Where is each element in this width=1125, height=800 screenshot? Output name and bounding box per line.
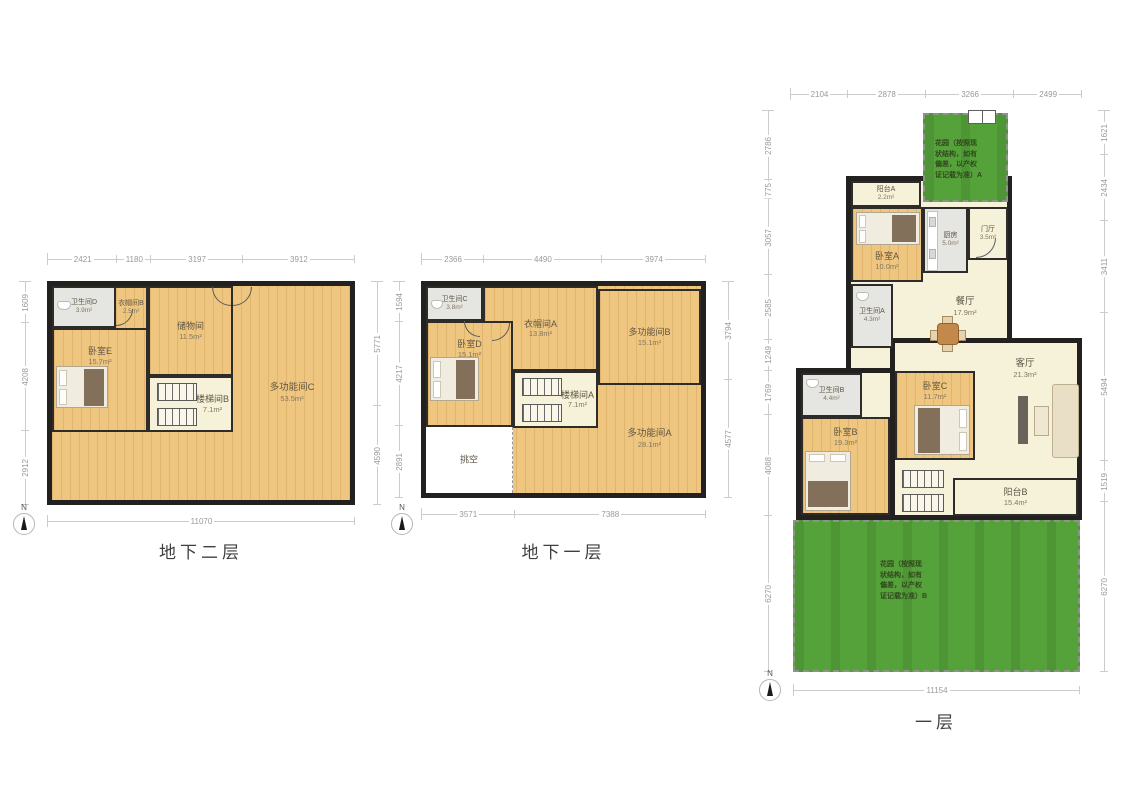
dim-segment: 2104 (790, 88, 848, 100)
dim-segment: 4590 (371, 406, 383, 505)
dim-value: 3794 (724, 320, 733, 342)
compass-n-label: N (759, 670, 781, 679)
compass-north-icon: N (391, 504, 413, 535)
room-label: 阳台B15.4m² (955, 487, 1076, 507)
dim-segment: 2366 (421, 253, 484, 265)
pillow-icon (859, 230, 866, 243)
room-label: 卧室E15.7m² (54, 346, 146, 366)
dim-value: 2421 (72, 255, 94, 264)
room-area: 3.9m² (76, 307, 93, 315)
room-name: 卧室E (88, 346, 112, 357)
dim-value: 3571 (457, 510, 479, 519)
dim-value: 2912 (21, 457, 30, 479)
room-name: 多功能间B (628, 327, 670, 338)
room-name: 卫生间D (71, 299, 97, 307)
chair-icon (958, 330, 966, 341)
dim-value: 1519 (1100, 471, 1109, 493)
dim-rail-right: 1621 2434 3411 5494 1519 6270 (1098, 110, 1110, 672)
dim-segment: 7388 (515, 508, 706, 520)
room-area: 28.1m² (638, 440, 661, 449)
dim-value: 3057 (764, 227, 773, 249)
dim-segment: 4490 (484, 253, 602, 265)
dim-value: 1249 (764, 344, 773, 366)
dim-segment: 1609 (19, 281, 31, 323)
dim-segment: 2891 (393, 426, 405, 498)
dim-rail-left: 2786 775 3057 2585 1249 1769 4088 6270 (762, 110, 774, 672)
dim-segment: 6270 (1098, 502, 1110, 672)
dim-value: 3912 (288, 255, 310, 264)
dim-value: 1769 (764, 382, 773, 404)
room-bathroom-b: 卫生间B4.4m² (801, 373, 862, 417)
dim-rail-right: 5771 4590 (371, 281, 383, 505)
room-label: 阳台A2.2m² (853, 186, 919, 202)
door-swing-icon (233, 287, 252, 306)
dim-value: 2366 (442, 255, 464, 264)
room-stairwell-b: 楼梯间B7.1m² (148, 376, 233, 432)
compass-n-label: N (391, 504, 413, 513)
plan-title-basement2: 地下二层 (52, 538, 350, 563)
pillow-icon (809, 454, 825, 462)
blanket-icon (456, 360, 475, 399)
dim-segment: 11070 (47, 515, 355, 527)
compass-north-icon: N (759, 670, 781, 701)
room-bedroom-e: 卧室E15.7m² (52, 328, 148, 432)
room-area: 4.3m² (864, 316, 881, 324)
pillow-icon (433, 381, 441, 398)
bed-icon (856, 212, 920, 245)
room-void: 挑空 (426, 427, 513, 493)
dim-segment: 2912 (19, 431, 31, 505)
blanket-icon (808, 481, 848, 507)
dim-segment: 3197 (151, 253, 243, 265)
room-label: 卧室A10.0m² (853, 251, 921, 271)
room-balcony-a: 阳台A2.2m² (851, 181, 921, 207)
stairs-icon (157, 408, 197, 426)
dim-value: 4217 (395, 363, 404, 385)
dim-segment: 3266 (926, 88, 1014, 100)
dim-segment: 4577 (722, 380, 734, 498)
dim-value: 7388 (599, 510, 621, 519)
dim-value: 1180 (124, 255, 145, 264)
room-label-multi-c: 多功能间C53.5m² (233, 382, 351, 403)
room-label: 楼梯间A7.1m² (559, 390, 596, 410)
compass-n-label: N (13, 504, 35, 513)
room-label: 楼梯间B7.1m² (194, 394, 231, 414)
dim-segment: 2421 (47, 253, 117, 265)
room-area: 53.5m² (280, 394, 303, 403)
plan-title-basement1: 地下一层 (426, 538, 701, 563)
dim-value: 1609 (21, 292, 30, 314)
dim-value: 2891 (395, 451, 404, 473)
dim-value: 4208 (21, 366, 30, 388)
dim-value: 4088 (764, 455, 773, 477)
floorplan-basement2: 2421 1180 3197 3912 1609 4208 2912 5771 … (47, 281, 355, 505)
dim-segment: 2786 (762, 110, 774, 180)
floorplan-first-floor: 2104 2878 3266 2499 2786 775 3057 2585 1… (790, 110, 1082, 672)
room-kitchen: 厨房5.0m² (923, 207, 968, 273)
room-area: 7.1m² (203, 405, 222, 414)
room-area: 10.0m² (875, 262, 898, 271)
stairs-icon (902, 494, 944, 512)
dim-rail-left: 1594 4217 2891 (393, 281, 405, 498)
room-name: 卧室B (833, 427, 857, 438)
dim-segment: 5771 (371, 281, 383, 406)
dim-value: 2786 (764, 135, 773, 157)
room-stairwell-a: 楼梯间A7.1m² (513, 371, 598, 428)
dining-table-icon (930, 316, 964, 350)
room-name: 阳台B (1003, 487, 1027, 498)
room-area: 15.4m² (1004, 498, 1027, 507)
dim-value: 6270 (764, 583, 773, 605)
room-label: 多功能间B15.1m² (600, 327, 699, 347)
plan-title-first-floor: 一层 (790, 708, 1082, 733)
room-name: 多功能间A (627, 428, 671, 440)
dim-rail-top: 2104 2878 3266 2499 (790, 88, 1082, 100)
room-label: 厨房5.0m² (935, 232, 966, 248)
compass-needle (399, 516, 405, 530)
dim-value: 1621 (1100, 122, 1109, 144)
garden-b: 花园（按照现 状结构，如有 偏差，以产权 证记载为准）B (793, 520, 1080, 672)
dim-segment: 2499 (1014, 88, 1082, 100)
sofa-icon (1052, 384, 1079, 458)
dim-value: 11070 (189, 517, 215, 526)
dim-rail-right: 3794 4577 (722, 281, 734, 498)
dim-segment: 2434 (1098, 155, 1110, 221)
dim-segment: 3057 (762, 199, 774, 275)
compass-circle (391, 513, 413, 535)
dim-segment: 1180 (117, 253, 151, 265)
compass-needle (21, 516, 27, 530)
room-area: 19.3m² (834, 438, 857, 447)
room-area: 11.5m² (179, 332, 202, 341)
dim-segment: 1769 (762, 371, 774, 415)
dim-value: 11154 (924, 686, 949, 695)
toilet-icon (806, 379, 819, 388)
pillow-icon (830, 454, 846, 462)
dim-segment: 1249 (762, 340, 774, 371)
dim-rail-left: 1609 4208 2912 (19, 281, 31, 505)
dim-value: 1594 (395, 291, 404, 313)
dim-value: 2434 (1100, 177, 1109, 199)
blanket-icon (918, 408, 940, 453)
compass-north-icon: N (13, 504, 35, 535)
dim-segment: 4208 (19, 323, 31, 431)
room-name: 门厅 (981, 225, 995, 233)
toilet-icon (856, 292, 869, 301)
dim-value: 2499 (1037, 90, 1059, 99)
dim-value: 4490 (532, 255, 554, 264)
room-area: 11.7m² (924, 392, 947, 401)
bed-icon (914, 405, 970, 455)
floorplan-page: 2421 1180 3197 3912 1609 4208 2912 5771 … (0, 0, 1125, 800)
room-area: 4.4m² (823, 395, 840, 403)
room-area: 15.7m² (88, 357, 111, 366)
bed-icon (430, 357, 479, 401)
room-multi-b: 多功能间B15.1m² (598, 289, 701, 385)
room-area: 15.1m² (638, 338, 661, 347)
bed-icon (56, 366, 108, 408)
room-name: 卫生间C (441, 295, 467, 303)
sink-icon (929, 249, 936, 259)
coffee-table-icon (1034, 406, 1049, 436)
dim-segment: 1519 (1098, 461, 1110, 502)
bed-icon (805, 451, 851, 511)
toilet-icon (57, 301, 71, 310)
dim-value: 5494 (1100, 376, 1109, 398)
pillow-icon (433, 361, 441, 378)
garden-a-label: 花园（按照现 状结构，如有 偏差，以产权 证记载为准）A (935, 139, 982, 181)
room-name: 卫生间A (859, 308, 885, 316)
blanket-icon (84, 369, 104, 406)
table-top-icon (937, 323, 959, 345)
pillow-icon (59, 389, 67, 405)
dim-value: 2585 (764, 297, 773, 319)
dim-value: 3411 (1100, 256, 1109, 277)
room-name: 阳台A (877, 186, 896, 194)
compass-needle (767, 682, 773, 696)
dim-value: 775 (764, 181, 773, 198)
stairs-icon (522, 404, 562, 422)
dim-value: 4577 (724, 428, 733, 450)
dim-segment: 4217 (393, 322, 405, 427)
dim-rail-bottom: 3571 7388 (421, 508, 706, 520)
room-name: 卧室C (923, 381, 948, 392)
room-name: 楼梯间B (196, 394, 229, 405)
floorplan-basement1: 2366 4490 3974 1594 4217 2891 3794 4577 … (421, 281, 706, 498)
dim-value: 2878 (876, 90, 898, 99)
compass-circle (13, 513, 35, 535)
dim-rail-bottom: 11154 (793, 684, 1080, 696)
room-bathroom-d: 卫生间D3.9m² (52, 286, 116, 328)
dim-segment: 5494 (1098, 313, 1110, 462)
dim-value: 4590 (373, 445, 382, 467)
dim-rail-top: 2421 1180 3197 3912 (47, 253, 355, 265)
room-area: 5.0m² (942, 240, 959, 248)
dim-value: 3197 (186, 255, 208, 264)
room-bedroom-c: 卧室C11.7m² (895, 371, 975, 460)
dim-value: 3974 (643, 255, 665, 264)
room-name: 衣帽间A (524, 319, 557, 330)
stove-icon (929, 217, 936, 227)
dim-segment: 4088 (762, 415, 774, 517)
dim-value: 2104 (809, 90, 831, 99)
room-label: 卫生间A4.3m² (853, 308, 891, 324)
room-label-multi-a: 多功能间A28.1m² (598, 428, 701, 449)
chair-icon (942, 344, 953, 352)
room-label: 卧室D15.1m² (428, 339, 511, 359)
tv-cabinet-icon (1018, 396, 1028, 444)
room-label: 挑空 (426, 455, 512, 466)
stairs-icon (157, 383, 197, 401)
dim-value: 5771 (373, 333, 382, 355)
dim-value: 3266 (959, 90, 981, 99)
room-bathroom-c: 卫生间C3.8m² (426, 286, 483, 321)
room-name: 多功能间C (270, 382, 315, 394)
room-bedroom-b: 卧室B19.3m² (801, 417, 890, 515)
dim-segment: 3571 (421, 508, 515, 520)
gate-icon (968, 110, 996, 124)
room-bathroom-a: 卫生间A4.3m² (851, 284, 893, 348)
dim-segment: 1621 (1098, 110, 1110, 155)
dim-segment: 2585 (762, 275, 774, 339)
room-name: 储物间 (177, 321, 204, 332)
dim-segment: 2878 (848, 88, 926, 100)
pillow-icon (959, 409, 967, 428)
garden-a: 花园（按照现 状结构，如有 偏差，以产权 证记载为准）A (923, 113, 1008, 202)
room-label: 卫生间B4.4m² (803, 387, 860, 403)
stairs-icon (902, 470, 944, 488)
room-bedroom-a: 卧室A10.0m² (851, 207, 923, 282)
dim-segment: 3411 (1098, 221, 1110, 313)
room-name: 卧室D (457, 339, 482, 350)
room-name: 厨房 (944, 232, 958, 240)
room-name: 卧室A (875, 251, 899, 262)
room-label: 储物间11.5m² (150, 321, 231, 341)
dim-segment: 3912 (243, 253, 355, 265)
room-area: 2.2m² (878, 194, 895, 202)
dim-segment: 6270 (762, 516, 774, 672)
dim-value: 6270 (1100, 576, 1109, 598)
room-name: 衣帽间B (118, 300, 144, 308)
room-area: 13.8m² (529, 329, 552, 338)
room-area: 3.8m² (446, 304, 463, 312)
room-name: 挑空 (460, 455, 478, 466)
dim-segment: 1594 (393, 281, 405, 322)
pillow-icon (959, 432, 967, 451)
dim-segment: 11154 (793, 684, 1080, 696)
dim-rail-bottom: 11070 (47, 515, 355, 527)
blanket-icon (892, 215, 916, 242)
room-name: 楼梯间A (561, 390, 594, 401)
pillow-icon (59, 370, 67, 386)
room-name: 卫生间B (819, 387, 845, 395)
compass-circle (759, 679, 781, 701)
stairs-icon (522, 378, 562, 396)
dim-segment: 3974 (602, 253, 706, 265)
room-area: 7.1m² (568, 400, 587, 409)
toilet-icon (431, 300, 443, 309)
room-label: 卧室B19.3m² (803, 427, 888, 447)
dim-segment: 3794 (722, 281, 734, 380)
room-label: 卧室C11.7m² (897, 381, 973, 401)
pillow-icon (859, 215, 866, 228)
dim-rail-top: 2366 4490 3974 (421, 253, 706, 265)
garden-b-label: 花园（按照现 状结构，如有 偏差，以产权 证记载为准）B (880, 560, 927, 602)
room-balcony-b: 阳台B15.4m² (953, 478, 1078, 516)
dim-segment: 775 (762, 180, 774, 199)
